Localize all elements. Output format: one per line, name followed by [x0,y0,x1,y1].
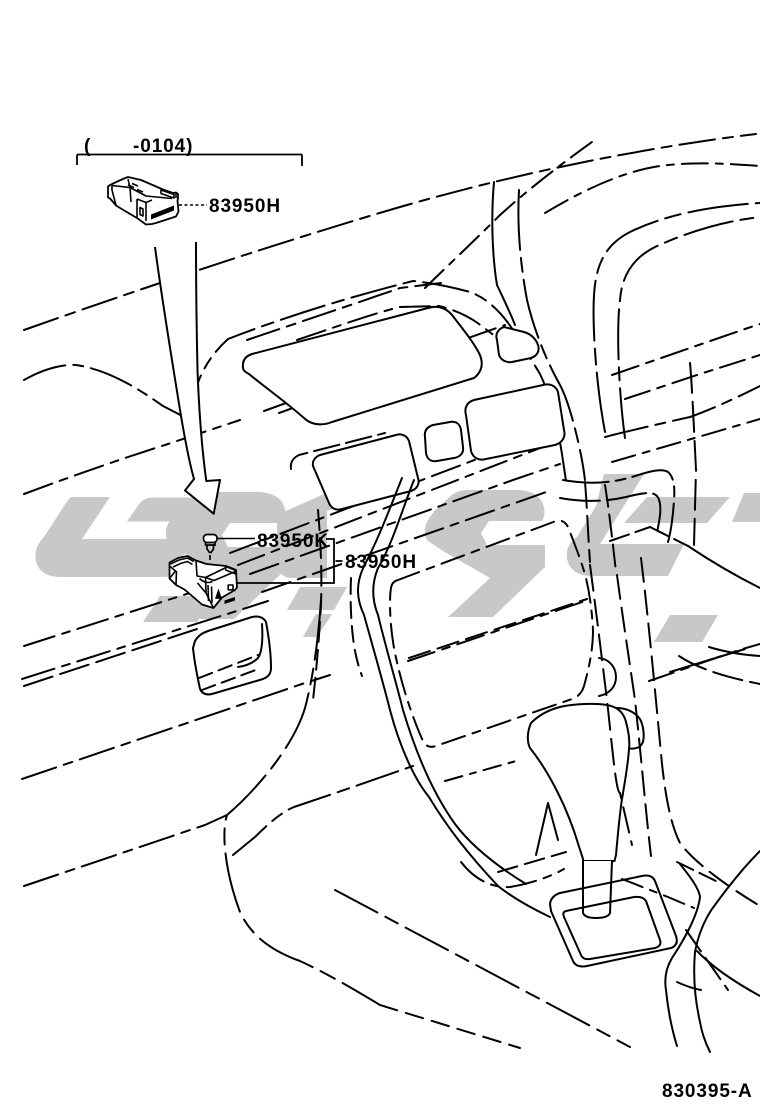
svg-text:83950H: 83950H [345,552,417,573]
svg-text:(: ( [84,136,91,157]
svg-text:-0104): -0104) [133,136,193,157]
svg-text:83950K: 83950K [257,531,329,552]
svg-text:83950H: 83950H [209,196,281,217]
svg-text:830395-A: 830395-A [662,1081,753,1102]
